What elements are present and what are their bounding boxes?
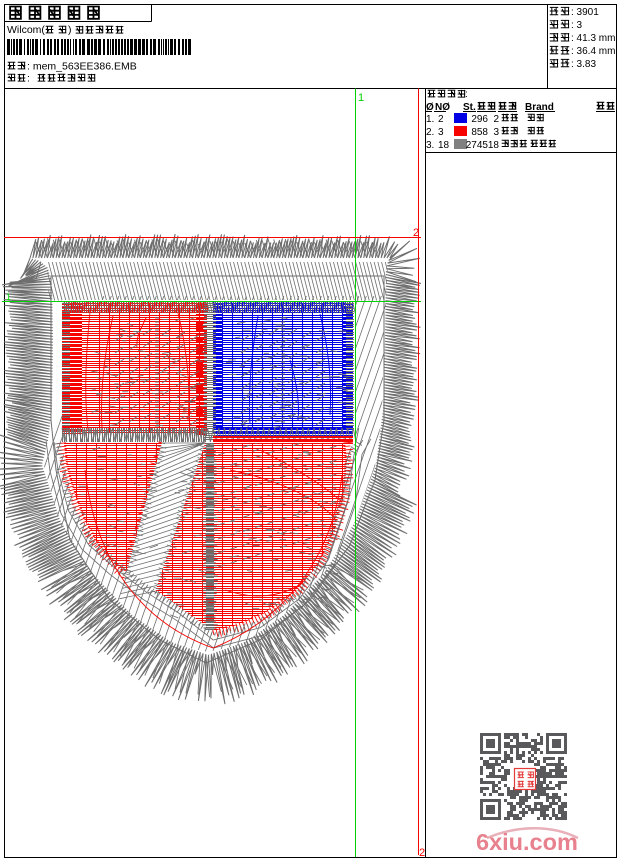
svg-text:2: 2: [438, 114, 444, 125]
svg-text:2.: 2.: [426, 127, 434, 138]
svg-text::: :: [465, 89, 468, 100]
svg-text:2: 2: [413, 227, 419, 239]
svg-text:6xiu.com: 6xiu.com: [476, 829, 578, 855]
svg-text:2: 2: [419, 847, 425, 859]
svg-text:1.: 1.: [426, 114, 434, 125]
svg-text:Wilcom(: Wilcom(: [7, 24, 45, 36]
svg-text:3.: 3.: [426, 140, 434, 151]
svg-text:18: 18: [488, 140, 500, 151]
svg-text:: 3901: : 3901: [571, 7, 599, 18]
svg-text::: :: [27, 73, 30, 85]
svg-text:: 36.4 mm: : 36.4 mm: [571, 46, 615, 57]
svg-text:1: 1: [358, 92, 364, 104]
svg-text:18: 18: [438, 140, 450, 151]
svg-text:: mem_563EE386.EMB: : mem_563EE386.EMB: [27, 61, 137, 73]
svg-text:3: 3: [493, 127, 499, 138]
svg-text:3: 3: [438, 127, 444, 138]
svg-text:296: 296: [471, 114, 488, 125]
svg-text:858: 858: [471, 127, 488, 138]
svg-text:2: 2: [493, 114, 499, 125]
svg-text:): ): [68, 24, 72, 36]
svg-text:: 3.83: : 3.83: [571, 59, 596, 70]
svg-text:: 41.3 mm: : 41.3 mm: [571, 33, 615, 44]
svg-text:: 3: : 3: [571, 20, 583, 31]
svg-text:1: 1: [6, 292, 11, 302]
svg-text:2745: 2745: [466, 140, 489, 151]
